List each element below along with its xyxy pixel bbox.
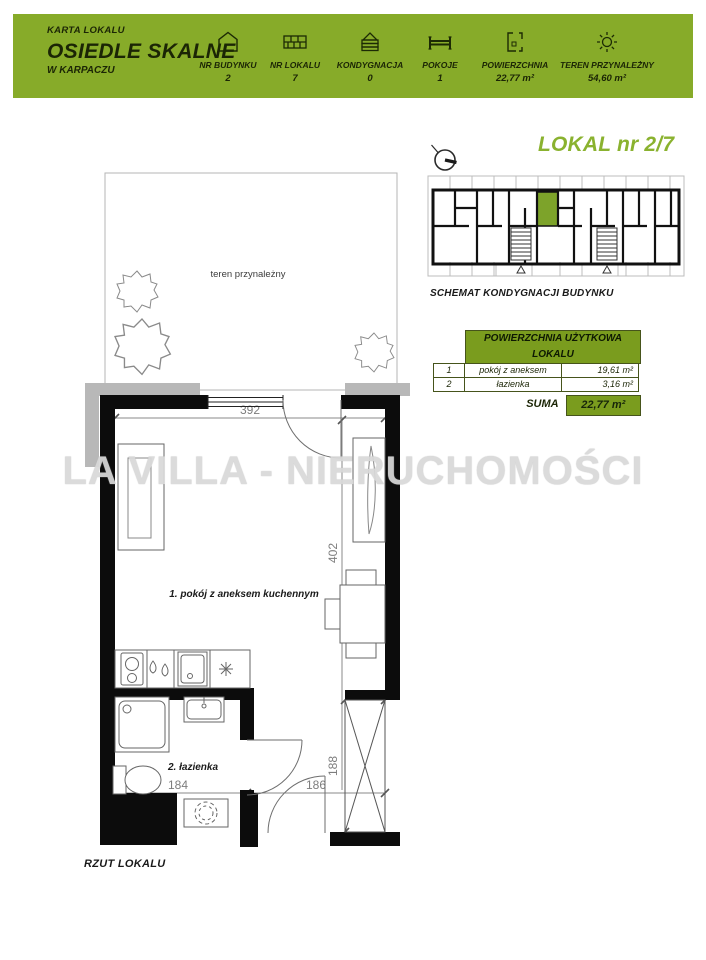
kitchen-sink-icon	[178, 652, 207, 686]
room2-label: 2. łazienka	[167, 762, 218, 773]
room-name: łazienka	[464, 377, 562, 392]
stat-teren-przynalezny: TEREN PRZYNALEŻNY 54,60 m²	[547, 27, 667, 84]
shower-icon	[115, 697, 169, 752]
entrance-triangles	[517, 266, 611, 273]
building-storey-schematic	[424, 166, 694, 286]
table-row: 1 pokój z aneksem 19,61 m²	[433, 363, 641, 378]
storage-shaft	[345, 700, 385, 832]
room1-label: 1. pokój z aneksem kuchennym	[169, 589, 319, 600]
garden-area: teren przynależny	[105, 173, 397, 390]
unit-title: LOKAL nr 2/7	[538, 133, 674, 157]
chair-icon	[346, 570, 376, 585]
chair-icon	[325, 599, 340, 629]
row-number: 1	[433, 363, 465, 378]
stat-label: TEREN PRZYNALEŻNY	[547, 60, 667, 70]
dim-right-height: 402	[326, 543, 340, 563]
toilet-tank-icon	[113, 766, 126, 794]
dim-bath-width: 184	[168, 778, 188, 792]
header-banner: KARTA LOKALU OSIEDLE SKALNE W KARPACZU N…	[13, 14, 693, 98]
stat-value: 54,60 m²	[547, 73, 667, 84]
row-number: 2	[433, 377, 465, 392]
area-table-header-row: POWIERZCHNIA UŻYTKOWA LOKALU	[433, 330, 641, 364]
room-area: 3,16 m²	[561, 377, 639, 392]
hob-star-icon	[219, 662, 233, 676]
washer-icon	[184, 799, 228, 827]
chair-icon	[346, 643, 376, 658]
karta-lokalu-page: { "header": { "card_label": "KARTA LOKAL…	[0, 0, 706, 960]
stair-cores	[511, 228, 617, 273]
area-table: POWIERZCHNIA UŻYTKOWA LOKALU 1 pokój z a…	[433, 331, 641, 416]
area-table-title: POWIERZCHNIA UŻYTKOWA LOKALU	[465, 330, 641, 364]
highlighted-unit	[537, 192, 558, 226]
floor-plan: teren przynależny 392 402 184 186 188	[60, 160, 410, 890]
sum-value: 22,77 m²	[566, 395, 641, 416]
watermark: LA VILLA - NIERUCHOMOŚCI	[0, 449, 706, 494]
dim-hall-width: 186	[306, 778, 326, 792]
sum-label: SUMA	[433, 395, 566, 416]
plan-caption: RZUT LOKALU	[84, 858, 166, 870]
kitchen-counter	[115, 650, 250, 688]
header-spacer	[433, 330, 465, 364]
table-row: 2 łazienka 3,16 m²	[433, 377, 641, 392]
garden-label: teren przynależny	[211, 269, 286, 280]
bathroom-door-swing	[247, 740, 302, 795]
toilet-bowl-icon	[125, 766, 161, 794]
window-top	[208, 395, 283, 409]
table-icon	[340, 585, 385, 643]
dim-top-width: 392	[240, 403, 260, 417]
room-name: pokój z aneksem	[464, 363, 562, 378]
sum-row: SUMA 22,77 m²	[433, 395, 641, 416]
room-area: 19,61 m²	[561, 363, 639, 378]
sun-icon	[547, 27, 667, 57]
dim-storage-height: 188	[326, 756, 340, 776]
schematic-caption: SCHEMAT KONDYGNACJI BUDYNKU	[430, 288, 614, 299]
